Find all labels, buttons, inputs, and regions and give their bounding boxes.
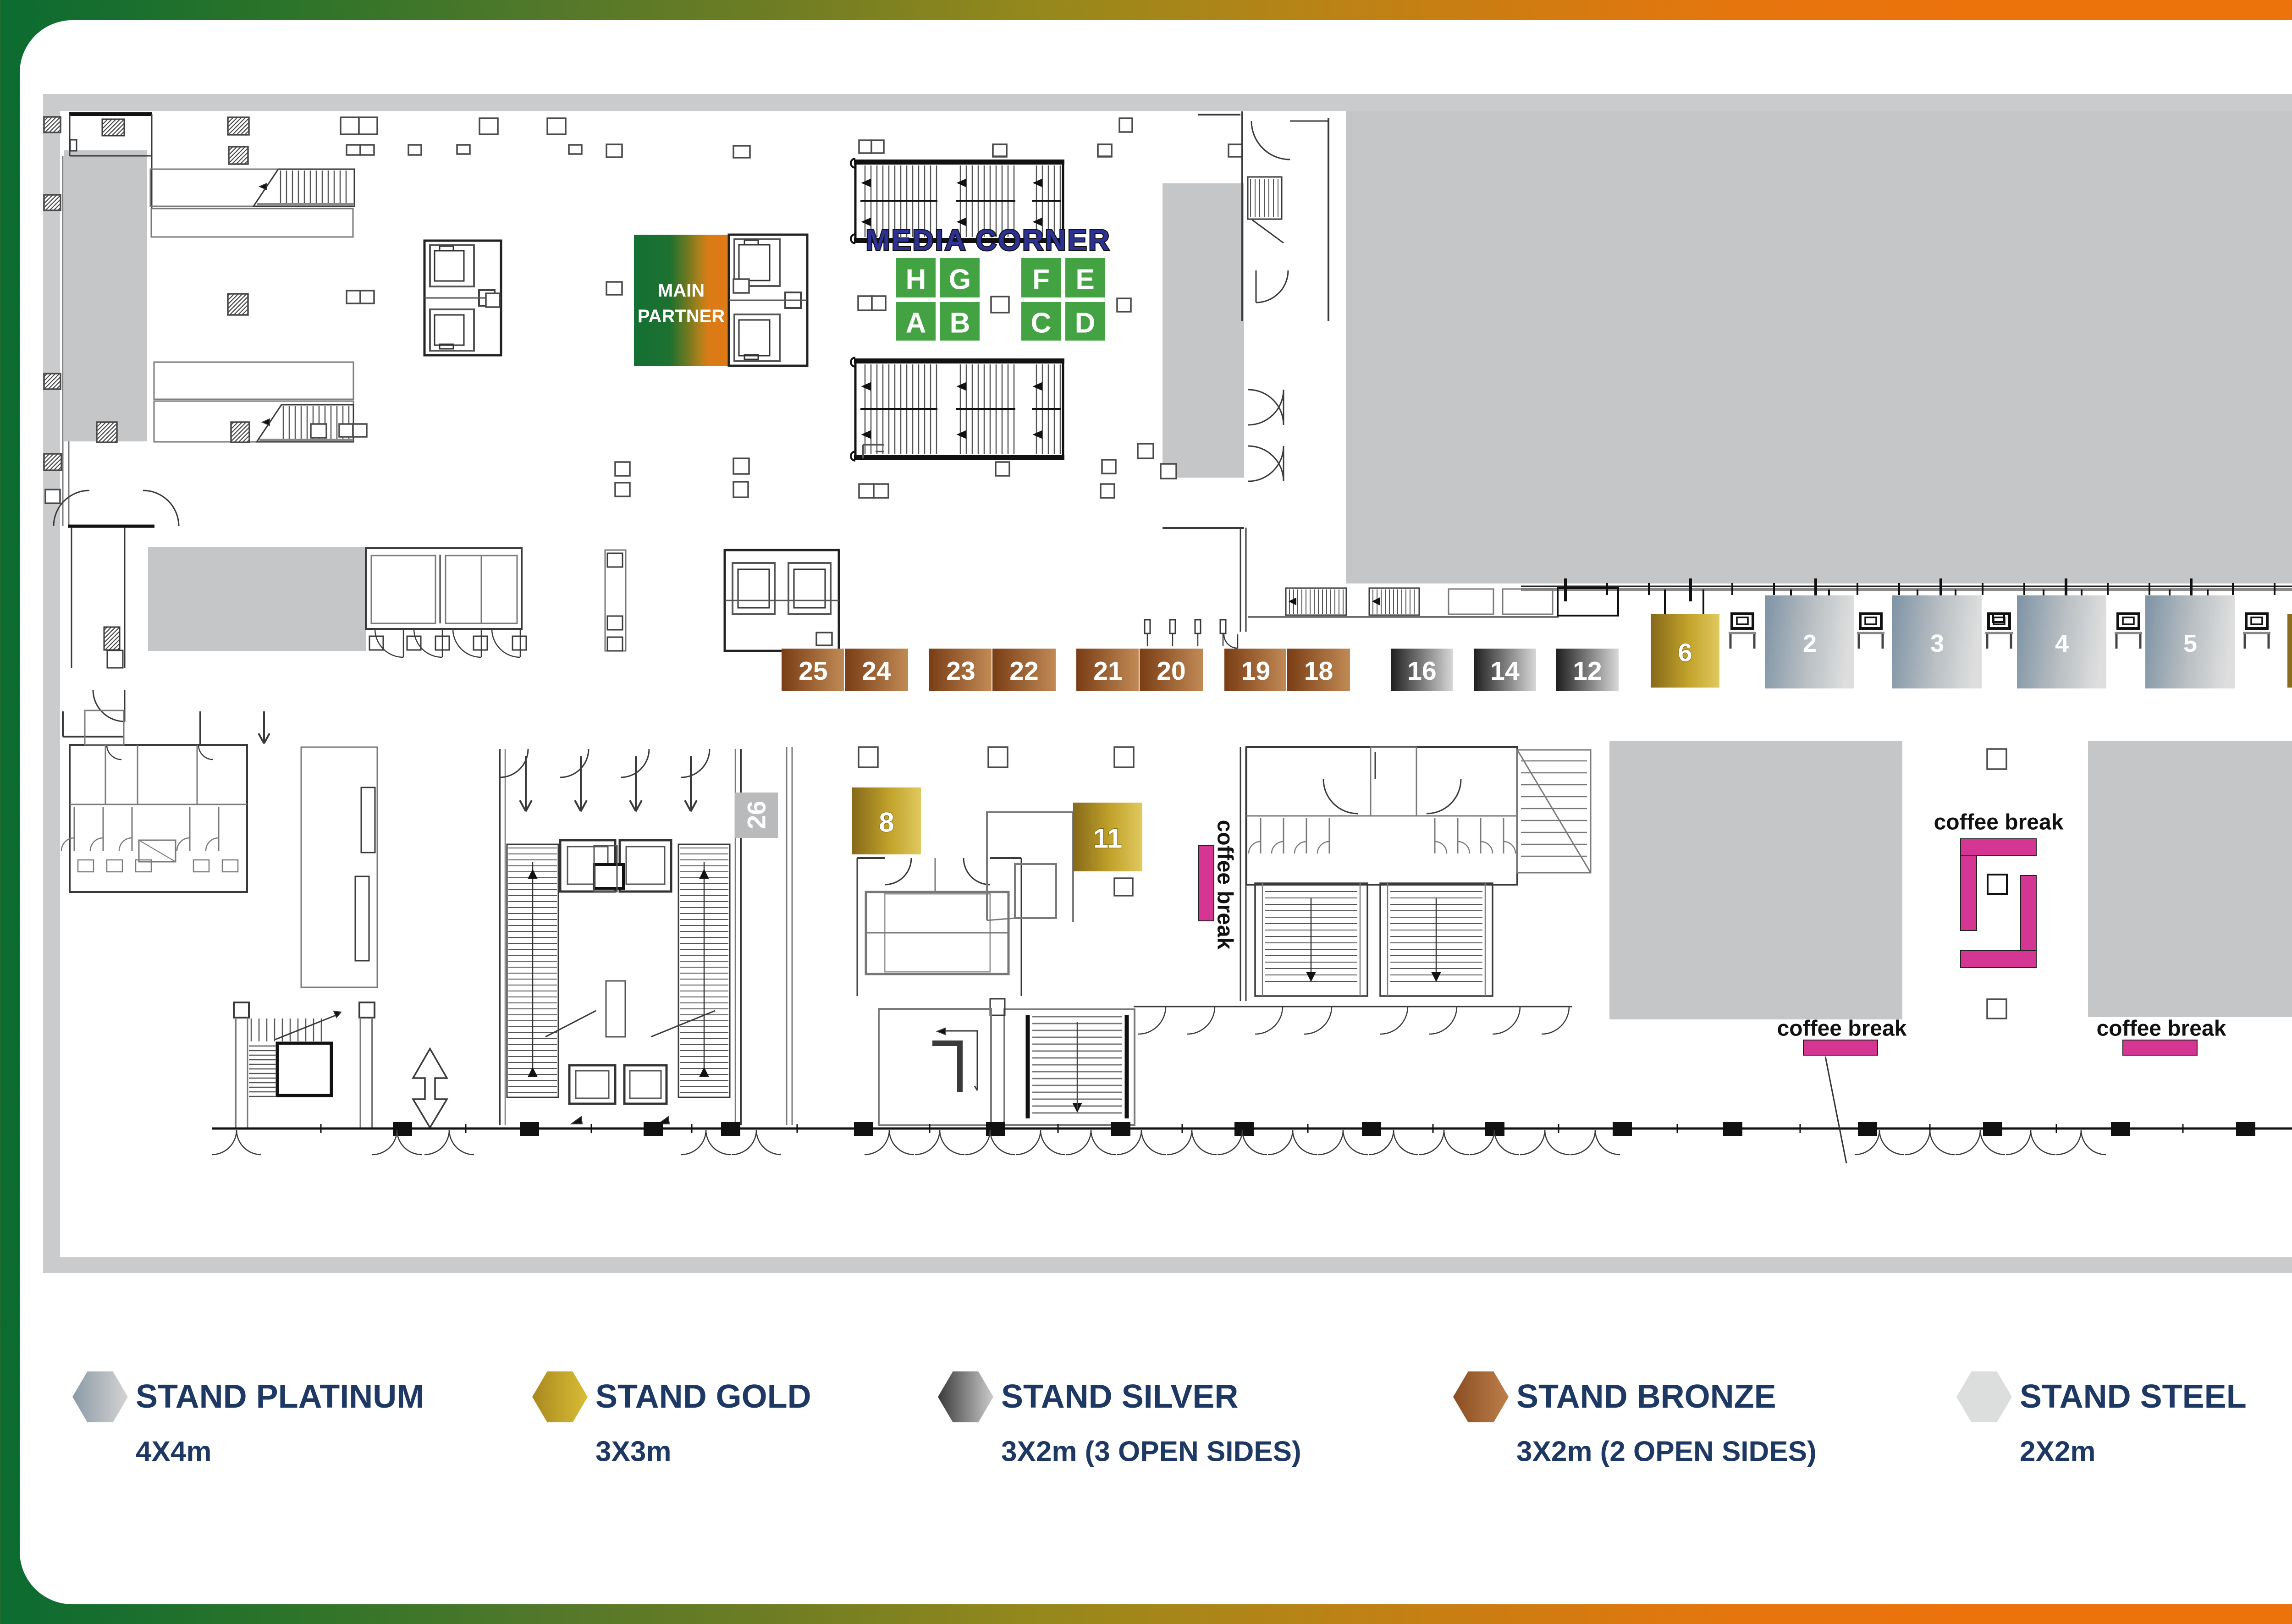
svg-text:18: 18 [1304, 656, 1333, 686]
svg-text:4X4m: 4X4m [136, 1436, 211, 1468]
svg-text:6: 6 [1678, 638, 1692, 667]
svg-text:21: 21 [1093, 656, 1122, 686]
svg-text:26: 26 [742, 801, 771, 829]
svg-text:STAND SILVER: STAND SILVER [1001, 1378, 1238, 1415]
svg-text:G: G [949, 264, 971, 296]
svg-text:F: F [1032, 264, 1050, 296]
svg-text:8: 8 [879, 807, 894, 838]
svg-text:STAND BRONZE: STAND BRONZE [1516, 1378, 1776, 1415]
svg-text:PARTNER: PARTNER [638, 306, 725, 326]
svg-text:D: D [1075, 308, 1096, 339]
svg-text:MEDIA CORNER: MEDIA CORNER [866, 224, 1111, 257]
svg-text:coffee break: coffee break [1777, 1017, 1907, 1041]
svg-text:B: B [950, 308, 970, 339]
svg-text:2X2m: 2X2m [2020, 1436, 2095, 1468]
svg-text:22: 22 [1009, 656, 1038, 686]
svg-text:23: 23 [946, 656, 975, 686]
svg-text:coffee break: coffee break [1213, 820, 1237, 950]
svg-text:11: 11 [1093, 823, 1122, 854]
svg-text:20: 20 [1157, 656, 1185, 686]
svg-text:3: 3 [1930, 630, 1944, 657]
svg-text:C: C [1031, 308, 1052, 339]
svg-text:5: 5 [2183, 630, 2197, 657]
svg-text:A: A [906, 308, 926, 339]
svg-text:3X3m: 3X3m [595, 1436, 671, 1468]
svg-text:STAND PLATINUM: STAND PLATINUM [136, 1378, 424, 1415]
svg-text:STAND STEEL: STAND STEEL [2020, 1378, 2247, 1415]
svg-text:12: 12 [1573, 656, 1602, 686]
svg-text:3X2m (2 OPEN SIDES): 3X2m (2 OPEN SIDES) [1516, 1436, 1817, 1468]
svg-text:4: 4 [2055, 630, 2069, 657]
svg-text:3X2m (3 OPEN SIDES): 3X2m (3 OPEN SIDES) [1001, 1436, 1301, 1468]
svg-text:2: 2 [1803, 630, 1817, 657]
svg-text:25: 25 [799, 656, 827, 686]
svg-text:coffee break: coffee break [2097, 1017, 2226, 1041]
svg-text:16: 16 [1407, 656, 1436, 686]
svg-text:H: H [906, 264, 926, 296]
svg-text:MAIN: MAIN [658, 281, 705, 301]
svg-text:coffee break: coffee break [1934, 810, 2064, 835]
svg-text:E: E [1075, 264, 1094, 296]
svg-text:19: 19 [1241, 656, 1270, 686]
svg-text:24: 24 [862, 656, 891, 686]
svg-text:STAND GOLD: STAND GOLD [595, 1378, 811, 1415]
svg-text:14: 14 [1490, 656, 1520, 686]
